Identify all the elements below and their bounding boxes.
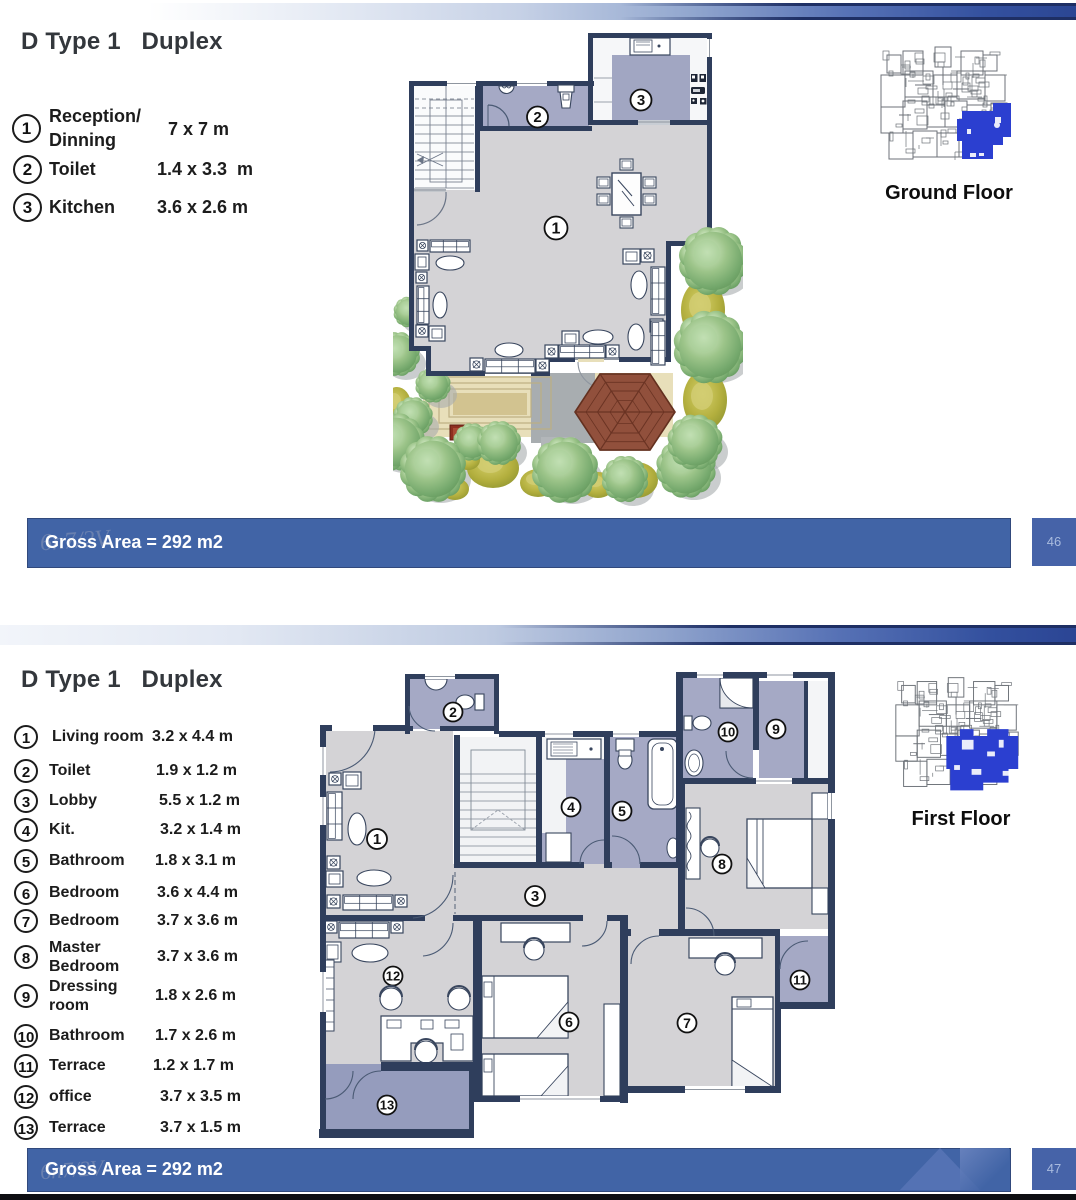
svg-text:3: 3 [637, 92, 645, 109]
svg-text:6: 6 [565, 1014, 573, 1030]
svg-text:7: 7 [683, 1015, 691, 1031]
svg-text:1: 1 [552, 220, 561, 237]
svg-text:4: 4 [567, 799, 575, 815]
svg-text:2: 2 [449, 704, 457, 720]
svg-text:13: 13 [380, 1097, 394, 1112]
svg-text:11: 11 [793, 972, 807, 987]
svg-text:10: 10 [721, 724, 735, 739]
svg-text:12: 12 [386, 968, 400, 983]
svg-text:3: 3 [531, 888, 539, 905]
svg-text:8: 8 [718, 856, 726, 872]
svg-text:9: 9 [772, 721, 780, 737]
svg-text:1: 1 [373, 831, 381, 848]
svg-text:5: 5 [618, 803, 626, 819]
svg-text:2: 2 [533, 109, 541, 126]
